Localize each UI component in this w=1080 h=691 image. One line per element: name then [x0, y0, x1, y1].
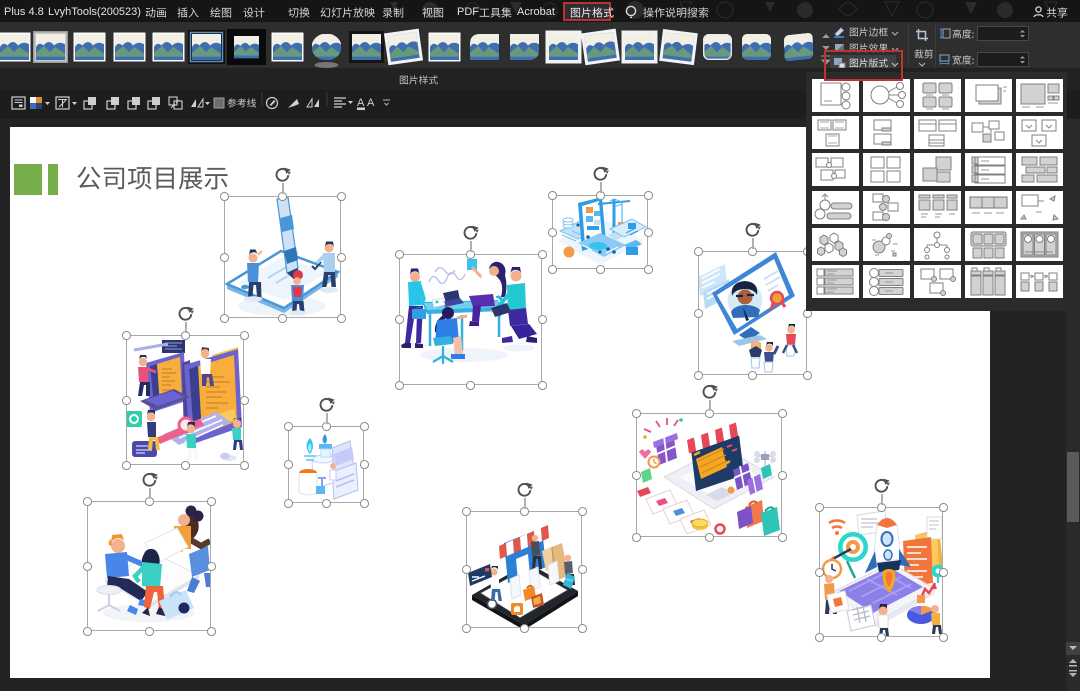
svg-text:A: A	[367, 97, 375, 109]
svg-text:A: A	[357, 97, 365, 109]
